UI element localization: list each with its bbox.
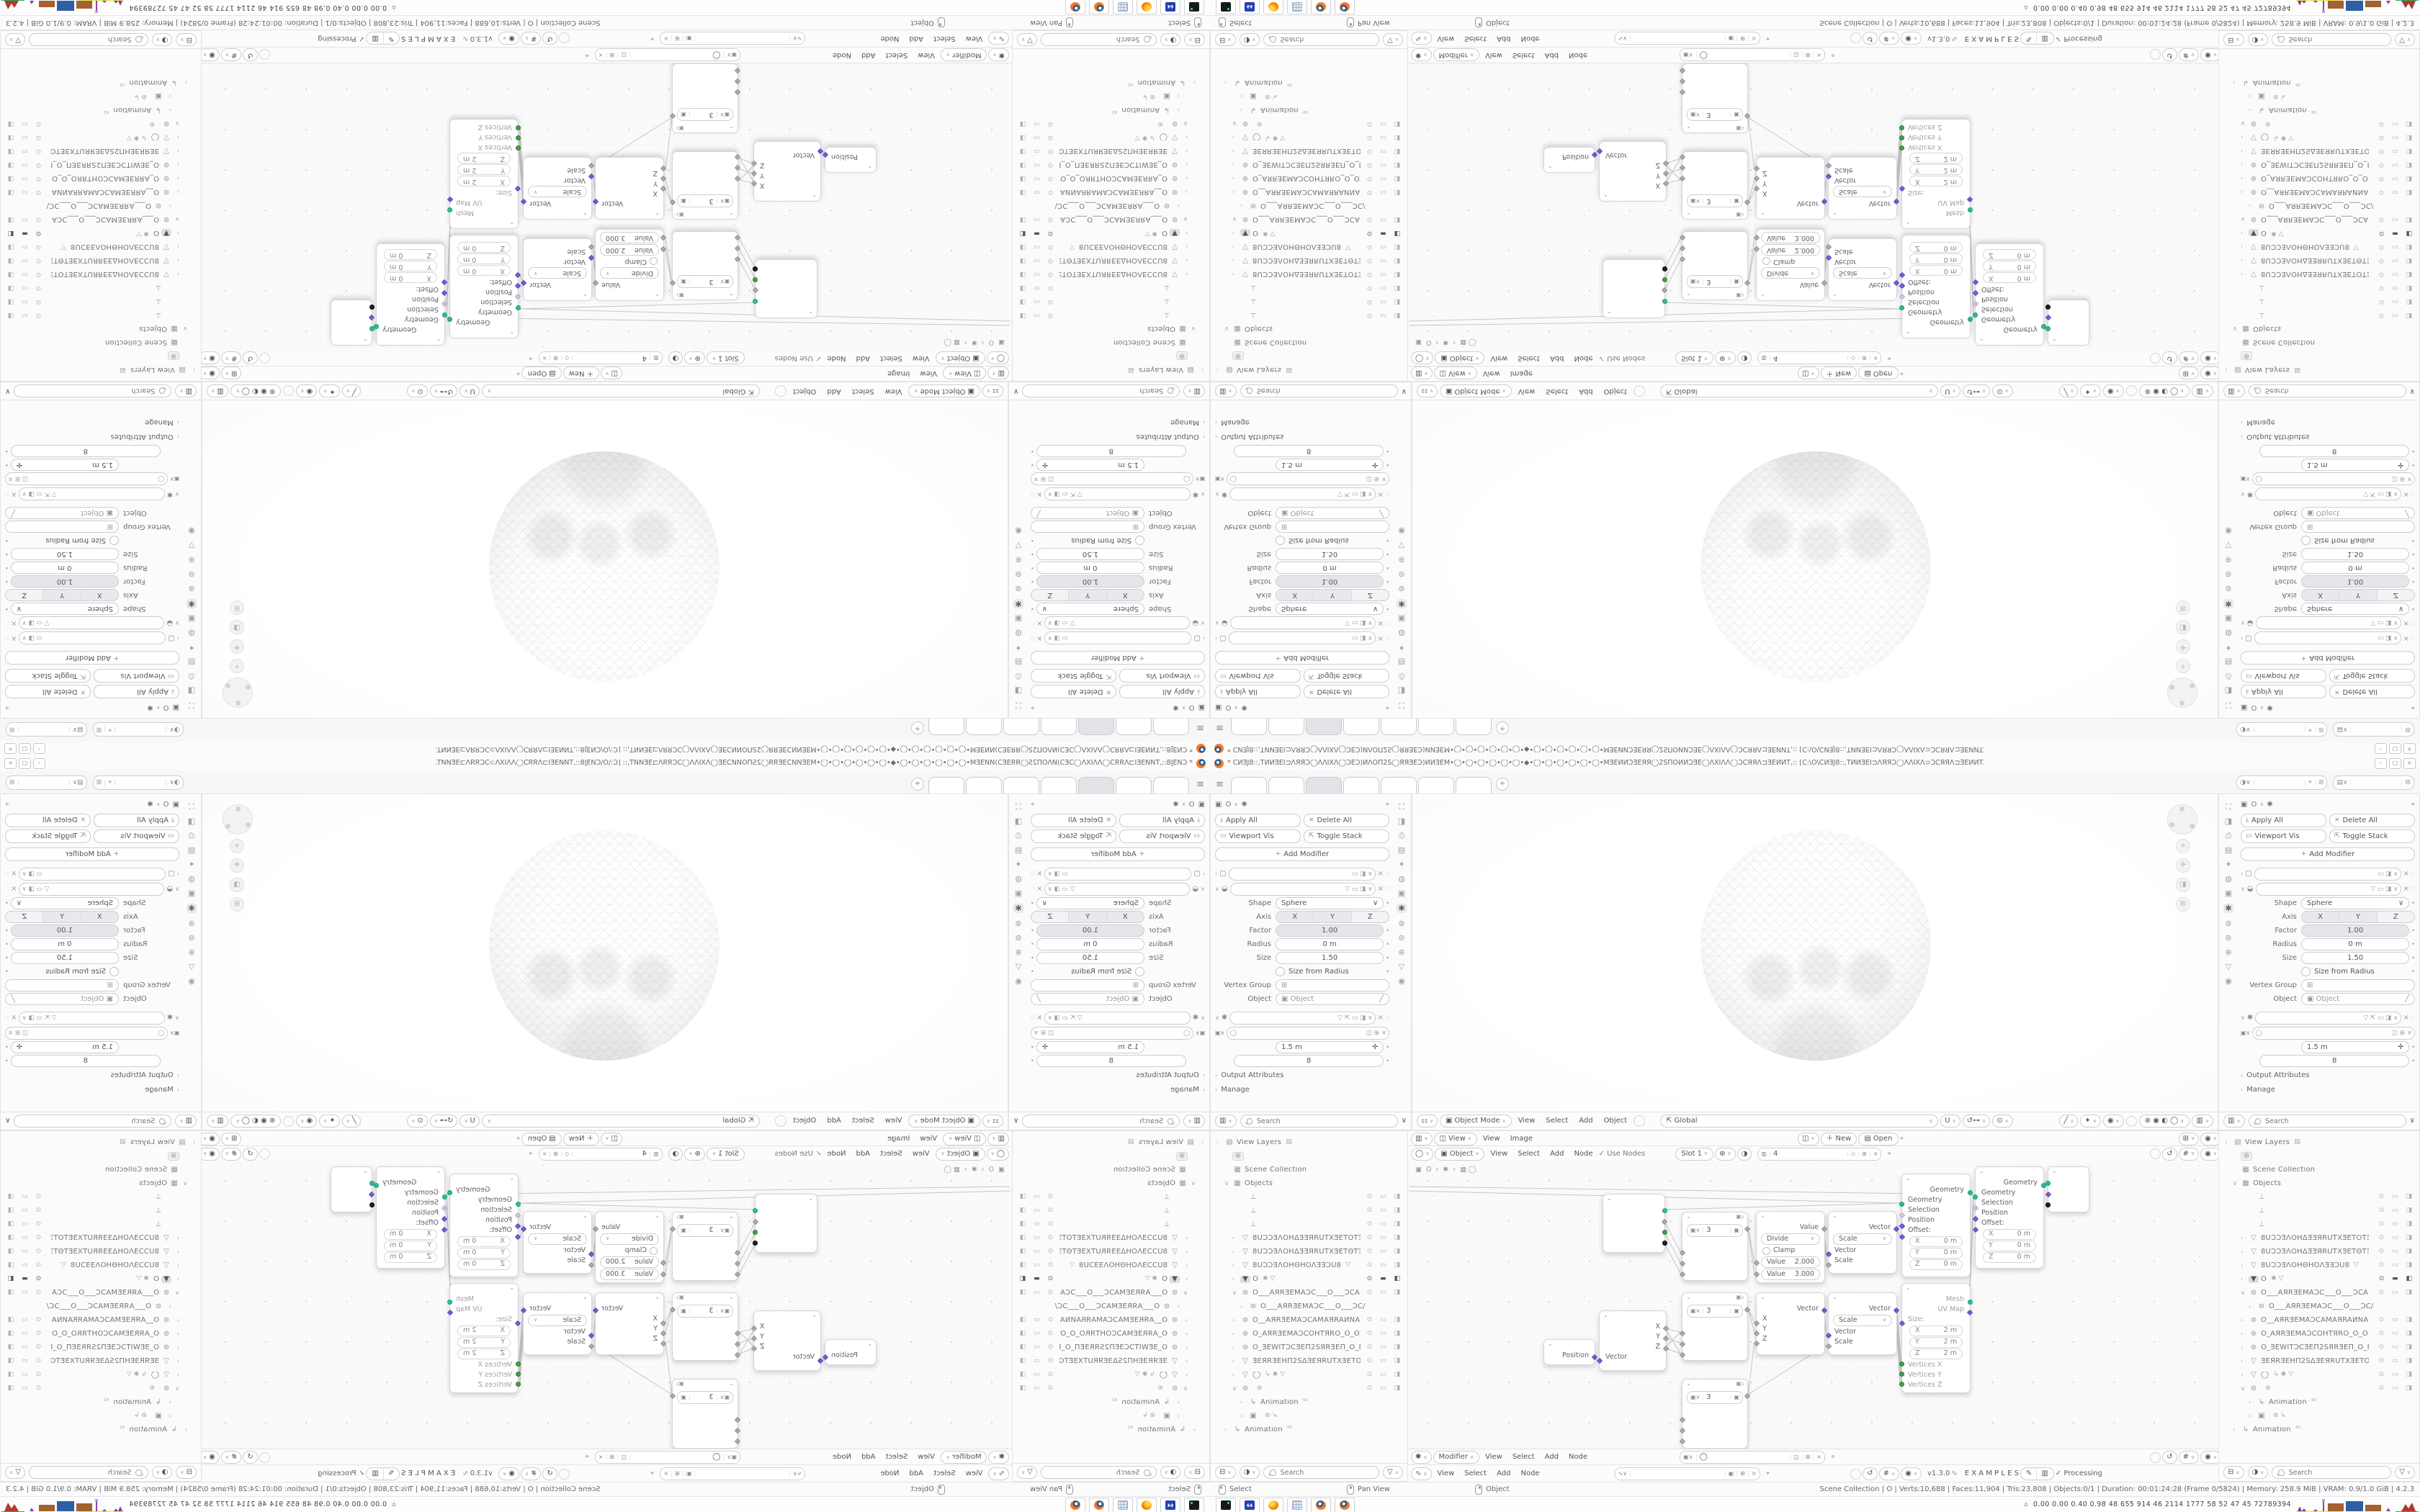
outliner-row[interactable]: ⊥ ⊙ ▭ ◨ bbox=[4, 1190, 198, 1204]
pin-icon[interactable]: ⌖ bbox=[1031, 801, 1035, 809]
visibility-toggles[interactable]: ⊙ ▭ ◨ bbox=[4, 271, 41, 277]
outliner-search[interactable] bbox=[2272, 33, 2391, 46]
new-image-button[interactable]: ＋New bbox=[1821, 1133, 1857, 1146]
outliner-row[interactable]: › ↳ Animation ⁴² bbox=[1016, 76, 1206, 89]
tab-object-icon[interactable]: ▣ bbox=[188, 889, 195, 897]
add-modifier-button[interactable]: +Add Modifier bbox=[1031, 651, 1205, 665]
overlays-button[interactable]: ◉∨ bbox=[199, 367, 220, 380]
menu-object[interactable]: Object bbox=[1600, 1117, 1632, 1125]
tab-particles-icon[interactable]: ⊛ bbox=[2225, 585, 2231, 593]
expand-caret[interactable]: › bbox=[171, 258, 179, 264]
shading-mode-group[interactable]: ⊕ ◉ ◐ ◯ ∨ bbox=[2139, 384, 2190, 397]
outliner-row[interactable]: ⊥ ⊙ ▭ ◨ bbox=[1016, 281, 1206, 294]
outliner-row[interactable]: › ⊚ O___AЯRƎEMAƆC___O___ƆC/ bbox=[4, 1300, 198, 1313]
outliner-row[interactable]: › ▼ O ✱ ▽ ⊙ ▬ ◧ bbox=[4, 1272, 198, 1286]
outliner-row[interactable]: ⊥ ⊙ ▭ ◨ bbox=[1016, 294, 1206, 308]
outliner-row[interactable]: ∨ ⊚ O___AЯRƎEMAƆC___O___ƆCAMƎ ⊙ ▭ ◨ bbox=[1214, 212, 1404, 226]
open-image-button[interactable]: ▤Open bbox=[521, 1133, 561, 1146]
taskbar-system-monitor-icon[interactable] bbox=[1184, 1498, 1204, 1512]
outliner-row[interactable]: › ⊚ O_ƎEWITƆCƎEΠ2SЯRƎEΠ_O_ΠƎEЯR ⊙ ▭ ◨ bbox=[4, 1341, 198, 1354]
visibility-toggles[interactable]: ⊙ ▭ ◨ bbox=[1367, 271, 1404, 277]
outliner-row[interactable]: ⊥ ⊙ ▭ ◨ bbox=[1016, 1218, 1206, 1231]
outliner-row[interactable]: ⊥ ⊙ ▭ ◨ bbox=[2222, 1190, 2416, 1204]
annotate-button[interactable]: ╱∨ bbox=[2059, 384, 2078, 397]
node-separate-xyz[interactable]: ⌄ X Y Z Vector bbox=[1599, 141, 1667, 202]
outliner-row[interactable]: › ▽ 8UƆƆƎΛΟΗΔƎƎЯRUTXƎETΘTƎEXT ⊙ ▭ ◨ bbox=[2222, 1245, 2416, 1259]
expand-caret[interactable]: ∨ bbox=[1180, 121, 1188, 127]
node-position[interactable]: ⌄ Position bbox=[825, 147, 877, 173]
object-name[interactable]: 8UƆƆƎΛΟΗΔƎƎЯRUTXƎETΘTƎEXT bbox=[2261, 1248, 2369, 1256]
image-browse-button[interactable]: ◫∨ bbox=[1798, 367, 1819, 380]
grid-snap-button[interactable]: #∨ bbox=[2179, 48, 2200, 61]
visibility-toggles[interactable]: ⊙ ▭ ◨ bbox=[1367, 257, 1404, 264]
expand-caret[interactable]: › bbox=[2241, 1372, 2249, 1378]
workspace-tab[interactable] bbox=[1153, 719, 1189, 735]
visibility-toggles[interactable]: ⊙ ▭ ◨ bbox=[1016, 148, 1053, 154]
gn-context-dropdown[interactable]: Modifier∨ bbox=[1433, 48, 1480, 61]
outliner-row[interactable]: › ▽ ƎEЯRƎEHΠ2SΔƎEЯRUTXƎETOTƎEXT ⊙ ▭ ◨ bbox=[1016, 1354, 1206, 1368]
falloff-button[interactable]: ⊙∨ bbox=[1992, 1115, 2013, 1128]
visibility-toggles[interactable]: ⊙ ▭ ◨ bbox=[4, 189, 41, 195]
object-name[interactable]: O bbox=[1252, 1276, 1258, 1283]
annotate-button[interactable]: ╱∨ bbox=[2059, 1115, 2078, 1128]
output-attributes-expander[interactable]: ›Output Attributes bbox=[1031, 1070, 1205, 1081]
delete-all-button[interactable]: ×Delete All bbox=[2329, 814, 2415, 827]
grid-snap-button[interactable]: #∨ bbox=[221, 352, 242, 365]
filter-funnel-button[interactable]: ▽∨ bbox=[1017, 33, 1037, 46]
node-combine-xyz[interactable]: ⌄ Vector X Y Z bbox=[1756, 157, 1825, 220]
scene-selector[interactable]: ◑∨⌖⊞ bbox=[2236, 775, 2327, 790]
object-name[interactable]: Objects bbox=[1147, 1180, 1175, 1187]
visibility-toggles[interactable]: ⊙ ▭ ◨ bbox=[1367, 1262, 1404, 1269]
outliner-row[interactable]: › ▤ View Layers ▤ bbox=[1214, 1135, 1404, 1149]
outliner-search[interactable] bbox=[29, 33, 148, 46]
visibility-toggles[interactable]: ⊙ ▭ ◨ bbox=[2379, 1331, 2416, 1337]
outliner-row[interactable]: › ▽ 8UƆƆƎΛΟΗΔƎƎЯRUTXƎETOTƎEXT ⊙ ▭ ◨ bbox=[2222, 1231, 2416, 1245]
expand-caret[interactable]: ∨ bbox=[1232, 121, 1240, 127]
grid-icon[interactable]: ⊞ bbox=[2176, 600, 2190, 615]
manage-expander[interactable]: ›Manage bbox=[1215, 416, 1389, 428]
display-mode-button[interactable]: ⊟∨ bbox=[1215, 33, 1236, 46]
menu-view[interactable]: View bbox=[913, 51, 939, 58]
object-name[interactable]: O bbox=[1252, 230, 1258, 237]
tab-modifiers-icon[interactable]: ✱ bbox=[187, 904, 196, 913]
outliner-row[interactable]: › ⊚ O_ƎEWITƆCƎEΠ2SЯRƎEΠ_O_ΠƎEЯR ⊙ ▭ ◨ bbox=[4, 158, 198, 171]
display-mode-button[interactable]: ⊟∨ bbox=[176, 33, 197, 46]
gn-context-dropdown[interactable]: Modifier∨ bbox=[941, 1451, 987, 1464]
tab-object-icon[interactable]: ▣ bbox=[1398, 889, 1405, 897]
taskbar-firefox-icon[interactable] bbox=[1137, 0, 1157, 15]
visibility-toggles[interactable]: ⊙ ▭ ◨ bbox=[4, 1344, 41, 1351]
menu-add[interactable]: Add bbox=[1492, 1470, 1515, 1477]
modifier-slot-cast[interactable]: ∨◒▽▭◨∨×∷ bbox=[1215, 616, 1389, 629]
shape-dropdown[interactable]: Sphere∨ bbox=[1036, 603, 1144, 615]
editor-type-button[interactable]: ∿∨ bbox=[1411, 1467, 1432, 1480]
vector-operation-dropdown[interactable]: Scale∨ bbox=[1833, 1315, 1892, 1326]
expand-caret[interactable]: › bbox=[1240, 94, 1248, 99]
visibility-toggles[interactable]: ⊙ ▭ ◨ bbox=[4, 134, 41, 140]
expand-caret[interactable]: › bbox=[2241, 1345, 2249, 1351]
outliner-row[interactable]: › ▽ 8UƆƆƎΛΟΗΔƎƎЯRUTXƎETOTƎEXT ⊙ ▭ ◨ bbox=[1016, 267, 1206, 281]
menu-add[interactable]: Add bbox=[857, 1454, 879, 1461]
outliner-row[interactable]: › ↳ Animation ⁴² bbox=[4, 76, 198, 89]
chevron-down-icon[interactable]: ∨ bbox=[5, 387, 10, 395]
outliner-row[interactable]: › ▽ 8UƆƆƎΛΟΗΔƎƎЯRUTXƎETOTƎEXT ⊙ ▭ ◨ bbox=[1214, 1231, 1404, 1245]
grid-icon[interactable]: ⊞ bbox=[2176, 897, 2190, 912]
menu-select[interactable]: Select bbox=[929, 35, 960, 42]
axis-segmented[interactable]: XYZ bbox=[1031, 911, 1144, 923]
apply-all-button[interactable]: ⤓Apply All bbox=[1119, 685, 1205, 698]
object-name[interactable]: O___AЯRƎEMAƆC___O___ƆCAMƎ bbox=[1252, 1290, 1361, 1297]
manage-expander[interactable]: ›Manage bbox=[2241, 416, 2415, 428]
outliner-row[interactable]: ∨ ⊚ O___AЯRƎEMAƆC___O___ƆCAMƎ ⊙ ▭ ◨ bbox=[4, 1286, 198, 1300]
node-set-position-1[interactable]: ⌄ Geometry Geometry Selection Position O… bbox=[1901, 1174, 1971, 1277]
object-name[interactable]: 8UƆƆƎΛΟΗΔƎƎЯRUTXƎETOTƎEXT bbox=[1252, 271, 1361, 278]
outliner-row[interactable]: › ▽ 8UƆƆƎΛΟΗΘΗΟΛƎƎƆU8 ▽ ⊙ ▭ ◨ bbox=[1214, 240, 1404, 253]
apply-all-button[interactable]: ⤓Apply All bbox=[1119, 814, 1205, 827]
menu-node[interactable]: Node bbox=[1564, 1454, 1592, 1461]
move-icon[interactable]: ✛ bbox=[230, 858, 244, 873]
menu-node[interactable]: Node bbox=[828, 1454, 856, 1461]
node-vector-scale-2[interactable]: ⌄ Vector Scale∨ Vector Scale bbox=[523, 1292, 592, 1355]
object-name[interactable]: O bbox=[1162, 1276, 1168, 1283]
expand-caret[interactable]: › bbox=[2249, 1413, 2257, 1419]
tab-object-icon[interactable]: ▣ bbox=[188, 615, 195, 623]
tab-constraints-icon[interactable]: ⊕ bbox=[1015, 948, 1021, 956]
size-from-radius-checkbox[interactable] bbox=[1135, 536, 1144, 545]
object-name[interactable]: Animation bbox=[1121, 1399, 1160, 1406]
outliner-row[interactable]: › ▽ 8UƆƆƎΛΟΗΔƎƎЯRUTXƎETΘTƎEXT ⊙ ▭ ◨ bbox=[4, 1245, 198, 1259]
maximize-button[interactable]: ▢ bbox=[2389, 744, 2401, 755]
grid-snap-button[interactable]: #∨ bbox=[221, 1148, 242, 1161]
outliner-row[interactable]: › ▽ 8UƆƆƎΛΟΗΘΗΟΛƎƎƆU8 ▽ ⊙ ▭ ◨ bbox=[4, 240, 198, 253]
tab-physics-icon[interactable]: ⊚ bbox=[1398, 934, 1404, 942]
node-group-output[interactable]: ⌄ bbox=[331, 300, 372, 346]
node-group-output[interactable]: ⌄ bbox=[2048, 300, 2089, 346]
toggle-stack-button[interactable]: ⇱Toggle Stack bbox=[2329, 829, 2415, 843]
visibility-toggles[interactable]: ⊙ ▭ ◨ bbox=[4, 216, 41, 222]
visibility-toggles[interactable]: ⊙ ▭ ◨ bbox=[4, 1207, 41, 1214]
node-group-datablock[interactable]: ▣∨◯◫⊞× bbox=[1215, 1027, 1389, 1040]
falloff-button[interactable]: ⊙∨ bbox=[407, 384, 428, 397]
expand-caret[interactable]: ∨ bbox=[171, 217, 179, 222]
tab-render-icon[interactable]: ◨ bbox=[188, 687, 195, 695]
output-attributes-expander[interactable]: ›Output Attributes bbox=[1215, 1070, 1389, 1081]
snap-button[interactable]: ↺ bbox=[542, 1467, 557, 1480]
object-name[interactable]: ƎEЯRƎEHΠ2SΔƎEЯRUTXƎETOTƎEXT bbox=[2261, 1358, 2369, 1365]
expand-caret[interactable]: › bbox=[163, 203, 171, 209]
expand-caret[interactable]: › bbox=[1224, 80, 1232, 86]
value-field-2[interactable]: Value3.000 bbox=[600, 232, 659, 243]
menu-add[interactable]: Add bbox=[852, 1151, 874, 1158]
clamp-checkbox[interactable]: Clamp bbox=[596, 1246, 663, 1256]
object-name[interactable]: ƎEЯRƎEHΠ2SΔƎEЯRUTXƎETOTƎEXT bbox=[51, 1358, 159, 1365]
expand-caret[interactable]: › bbox=[2241, 1277, 2249, 1282]
node-set-position-2[interactable]: ⌄ Geometry Geometry Selection Position O… bbox=[1975, 1166, 2044, 1269]
viewport-nav-gizmo[interactable] bbox=[223, 804, 253, 834]
clamp-checkbox[interactable]: Clamp bbox=[596, 256, 663, 266]
visibility-toggles[interactable]: ⊙ ▭ ◨ bbox=[1016, 1331, 1053, 1337]
tab-data-icon[interactable]: ▽ bbox=[189, 963, 194, 971]
outliner-row[interactable]: ∨ ⊚ O___AЯRƎEMAƆC___O___ƆCAMƎ ⊙ ▭ ◨ bbox=[1016, 212, 1206, 226]
outliner-row[interactable]: › ▽ 8UƆƆƎΛΟΗΔƎƎЯRUTXƎETΘTƎEXT ⊙ ▭ ◨ bbox=[1016, 1245, 1206, 1259]
expand-caret[interactable]: › bbox=[1180, 1263, 1188, 1269]
tab-viewlayer-icon[interactable]: ▤ bbox=[1398, 658, 1405, 666]
snap-button[interactable]: ↺ bbox=[243, 1148, 257, 1161]
transform-orientation-dropdown[interactable]: ⇱Global∨ bbox=[482, 384, 760, 397]
expand-caret[interactable]: › bbox=[1232, 1263, 1240, 1269]
overlays-button[interactable]: ◉∨ bbox=[498, 1467, 519, 1480]
filter-funnel-button[interactable]: ▽∨ bbox=[1017, 1466, 1037, 1479]
menu-icon[interactable]: ≡ bbox=[1196, 780, 1204, 789]
tab-particles-icon[interactable]: ⊛ bbox=[1015, 919, 1021, 927]
menu-select[interactable]: Select bbox=[1508, 1454, 1539, 1461]
object-name[interactable]: 8UƆƆƎΛΟΗΘΗΟΛƎƎƆU8 bbox=[1252, 243, 1341, 251]
grid-snap-button[interactable]: #∨ bbox=[2179, 352, 2200, 365]
node-set-position-2[interactable]: ⌄ Geometry Geometry Selection Position O… bbox=[376, 1166, 445, 1269]
vector-operation-dropdown[interactable]: Scale∨ bbox=[528, 186, 587, 197]
object-name[interactable]: View Layers bbox=[1237, 366, 1281, 374]
node-set-position-2[interactable]: ⌄ Geometry Geometry Selection Position O… bbox=[376, 243, 445, 346]
outliner-row[interactable]: › ▼ O ✱ ▽ ⊙ ▬ ◧ bbox=[1016, 226, 1206, 240]
tab-object-icon[interactable]: ▣ bbox=[1015, 889, 1022, 897]
gn-input-m[interactable]: 1.5 m✛ bbox=[1276, 459, 1384, 471]
minimize-button[interactable]: – bbox=[2375, 744, 2387, 755]
outliner-row[interactable]: › ⊚ O__AЯRƎEMAƆCAMAЯRAͶNAΠ_C ⊙ ▭ ◨ bbox=[1214, 185, 1404, 199]
gn-input-n[interactable]: 8 bbox=[2259, 1055, 2409, 1067]
expand-caret[interactable]: › bbox=[1196, 1140, 1204, 1146]
pin-icon[interactable]: ⌖ bbox=[1031, 703, 1035, 711]
refresh-icon[interactable] bbox=[2150, 50, 2161, 60]
outliner-row[interactable]: ⊥ ⊙ ▭ ◨ bbox=[4, 308, 198, 322]
menu-add[interactable]: Add bbox=[1574, 1117, 1597, 1125]
outliner-row[interactable]: › ↳ Animation ⁴² bbox=[1214, 1423, 1404, 1436]
shader-context-dropdown[interactable]: ▣Object∨ bbox=[1435, 1148, 1484, 1161]
refresh-icon[interactable] bbox=[1850, 1469, 1861, 1480]
pin-icon[interactable]: ⌖ bbox=[650, 1470, 655, 1477]
grid-icon[interactable]: ⊞ bbox=[230, 600, 244, 615]
outliner-search[interactable] bbox=[2272, 1466, 2391, 1479]
outliner-row[interactable]: › ↳ Animation ⁴² bbox=[4, 103, 198, 117]
minimize-button[interactable]: – bbox=[33, 744, 45, 755]
visibility-toggles[interactable]: ⊙ ▭ ◨ bbox=[1367, 1372, 1404, 1378]
snap-button[interactable]: ↺ bbox=[2162, 48, 2177, 61]
outliner-row[interactable]: › ▽ ƎEЯRƎEHΠ2SΔƎEЯRUTXƎETOTƎEXT ⊙ ▭ ◨ bbox=[4, 144, 198, 158]
size-field[interactable]: 1.50 bbox=[11, 548, 119, 560]
object-name[interactable]: ◯ bbox=[2261, 134, 2269, 141]
object-name[interactable]: Animation bbox=[2253, 1426, 2291, 1434]
workspace-tab[interactable] bbox=[1003, 777, 1039, 793]
editor-type-button[interactable]: ✱∨ bbox=[1411, 48, 1432, 61]
expand-caret[interactable]: › bbox=[1180, 1277, 1188, 1282]
object-name[interactable]: 8UƆƆƎΛΟΗΔƎƎЯRUTXƎETOTƎEXT bbox=[2261, 1235, 2369, 1242]
radius-field[interactable]: 0 m bbox=[2301, 938, 2409, 950]
properties-search[interactable] bbox=[1240, 384, 1398, 397]
snap-button[interactable]: ↺ bbox=[243, 352, 257, 365]
expand-caret[interactable]: › bbox=[2249, 94, 2257, 99]
workspace-tab[interactable] bbox=[1381, 777, 1417, 793]
taskbar-firefox-icon[interactable] bbox=[1263, 1498, 1283, 1512]
tab-material-icon[interactable]: ◉ bbox=[1398, 527, 1405, 535]
menu-add[interactable]: Add bbox=[857, 51, 879, 58]
modifier-slot-nodes[interactable]: ∨✱▽⇱▭◨∨×∷ bbox=[5, 487, 179, 500]
radius-field[interactable]: 0 m bbox=[1276, 938, 1384, 950]
visibility-toggles[interactable]: ⊙ ▭ ◨ bbox=[1016, 1207, 1053, 1214]
outliner-row[interactable]: › ⊚ O_ƎEWITƆCƎEΠ2SЯRƎEΠ_O_ΠƎEЯR ⊙ ▭ ◨ bbox=[1016, 158, 1206, 171]
workspace-tab[interactable] bbox=[1041, 777, 1077, 793]
proportional-edit-button[interactable]: ↺⊶∨ bbox=[1963, 1115, 1991, 1128]
node-group-3-a[interactable]: ⌄▣₃ ▣∨3▣ bbox=[672, 1212, 738, 1281]
outliner-search[interactable] bbox=[1041, 1466, 1157, 1479]
use-nodes-checkbox[interactable]: ✓ Use Nodes bbox=[1599, 1151, 1646, 1158]
axis-segmented[interactable]: XYZ bbox=[5, 589, 119, 601]
object-name[interactable]: Objects bbox=[1147, 325, 1175, 333]
expand-caret[interactable]: ∨ bbox=[1180, 1290, 1188, 1296]
gn-input-n[interactable]: 8 bbox=[1036, 1055, 1186, 1067]
menu-node[interactable]: Node bbox=[828, 51, 856, 58]
tab-data-icon[interactable]: ▽ bbox=[1399, 541, 1404, 549]
outliner-row[interactable]: › ▣ ⊛ ↳ bbox=[2222, 89, 2416, 103]
shape-dropdown[interactable]: Sphere∨ bbox=[1036, 897, 1144, 909]
output-attributes-expander[interactable]: ›Output Attributes bbox=[1031, 431, 1205, 442]
close-button[interactable]: × bbox=[2403, 744, 2416, 755]
tool-buttons[interactable]: ✎▥ bbox=[2020, 32, 2054, 45]
taskbar-blender-icon[interactable] bbox=[1089, 1498, 1109, 1512]
object-name[interactable]: Animation bbox=[1260, 1399, 1299, 1406]
grid-snap-button[interactable]: #∨ bbox=[221, 48, 242, 61]
toggle-stack-button[interactable]: ⇱Toggle Stack bbox=[5, 669, 91, 683]
visibility-toggles[interactable]: ⊙ ▭ ◨ bbox=[1016, 161, 1053, 168]
outliner-row[interactable]: › ▣ ⊛ ↳ bbox=[1214, 89, 1404, 103]
tab-material-icon[interactable]: ◉ bbox=[1015, 527, 1022, 535]
apply-all-button[interactable]: ⤓Apply All bbox=[94, 814, 179, 827]
workspace-tab[interactable] bbox=[1456, 719, 1492, 735]
node-separate-xyz[interactable]: ⌄ X Y Z Vector bbox=[753, 141, 821, 202]
gn-input-m[interactable]: 1.5 m✛ bbox=[2301, 1041, 2409, 1053]
outliner-row[interactable]: ▦ Scene Collection bbox=[4, 1163, 198, 1176]
factor-slider[interactable]: 1.00 bbox=[1276, 575, 1384, 588]
gizmos-button[interactable]: ⊞∨ bbox=[2179, 1133, 2200, 1146]
visibility-toggles[interactable]: ⊙ ▭ ◨ bbox=[4, 243, 41, 250]
object-name[interactable]: O_ƎEWITƆCƎEΠ2SЯRƎEΠ_O_ΠƎEЯR bbox=[51, 161, 159, 168]
editor-type-button[interactable]: ▥∨ bbox=[1411, 367, 1433, 380]
object-name[interactable]: ƎEЯRƎEHΠ2SΔƎEЯRUTXƎETOTƎEXT bbox=[1252, 1358, 1361, 1365]
menu-node[interactable]: Node bbox=[823, 355, 850, 362]
object-name[interactable]: 8UƆƆƎΛΟΗΔƎƎЯRUTXƎETOTƎEXT bbox=[1059, 1235, 1168, 1242]
outliner-row[interactable]: ⊥ ⊙ ▭ ◨ bbox=[4, 1204, 198, 1218]
maximize-button[interactable]: ▢ bbox=[19, 758, 31, 769]
visibility-toggles[interactable]: ⊙ ▭ ◨ bbox=[1016, 271, 1053, 277]
menu-node[interactable]: Node bbox=[876, 1470, 903, 1477]
tab-modifiers-icon[interactable]: ✱ bbox=[1013, 599, 1023, 608]
outliner-row[interactable]: ⊥ ⊙ ▭ ◨ bbox=[1016, 1204, 1206, 1218]
object-name[interactable]: Animation bbox=[2269, 1399, 2307, 1406]
visibility-toggles[interactable]: ⊙ ▭ ◨ bbox=[4, 298, 41, 305]
filter-funnel-button[interactable]: ▽∨ bbox=[1383, 1466, 1403, 1479]
visibility-toggles[interactable]: ⊙ ▭ ◨ bbox=[1367, 1194, 1404, 1200]
menu-view[interactable]: View bbox=[1514, 1117, 1540, 1125]
editor-type-button[interactable]: ✱∨ bbox=[1411, 1451, 1432, 1464]
minimize-button[interactable]: – bbox=[33, 758, 45, 769]
expand-caret[interactable]: ∨ bbox=[179, 1181, 187, 1187]
close-button[interactable]: × bbox=[2403, 758, 2416, 769]
outliner-row[interactable]: › ▽ 8UƆƆƎΛΟΗΘΗΟΛƎƎƆU8 ▽ ⊙ ▭ ◨ bbox=[2222, 240, 2416, 253]
object-name[interactable]: 8UƆƆƎΛΟΗΔƎƎЯRUTXƎETOTƎEXT bbox=[2261, 271, 2369, 278]
proportional-edit-button[interactable]: ↺⊶∨ bbox=[1963, 384, 1991, 397]
viewport-3d[interactable]: + ✛ ◨ ⊞ ⚏ ∨ ▣Object Mode∨ View Select Ad… bbox=[202, 793, 1008, 1130]
modifier-slot-nodes[interactable]: ∨✱▽⇱▭◨∨×∷ bbox=[1031, 1012, 1205, 1025]
object-name[interactable]: Animation bbox=[1245, 79, 1283, 86]
refresh-icon[interactable] bbox=[559, 33, 570, 44]
expand-caret[interactable]: › bbox=[179, 1427, 187, 1433]
expand-caret[interactable]: › bbox=[1232, 135, 1240, 140]
object-name[interactable]: O bbox=[2261, 230, 2267, 237]
outliner-row[interactable]: › ⊚ O___AЯRƎEMAƆC___O___ƆC/ bbox=[1214, 1300, 1404, 1313]
tab-output-icon[interactable]: ⎙ bbox=[189, 672, 195, 680]
menu-select[interactable]: Select bbox=[881, 51, 912, 58]
taskbar-system-monitor-icon[interactable] bbox=[1216, 1498, 1236, 1512]
node-group-3-c[interactable]: ⌄▣₃ ▣∨3▣ bbox=[1682, 1379, 1748, 1449]
menu-node[interactable]: Node bbox=[823, 1151, 850, 1158]
visibility-toggles[interactable]: ⊙ ▭ ◨ bbox=[1367, 1290, 1404, 1296]
modifier-slot-cast[interactable]: ∨◒▽▭◨∨×∷ bbox=[1215, 883, 1389, 896]
grid-snap-button[interactable]: #∨ bbox=[521, 1467, 542, 1480]
visibility-toggles[interactable]: ⊙ ▭ ◨ bbox=[2379, 1248, 2416, 1255]
pin-icon[interactable]: ⌖ bbox=[1900, 370, 1904, 377]
tab-constraints-icon[interactable]: ⊕ bbox=[1398, 948, 1404, 956]
geometry-node-graph[interactable]: ▣O ›✱ ›▦ ◯ bbox=[202, 1161, 1012, 1449]
expand-caret[interactable]: › bbox=[1232, 1345, 1240, 1351]
expand-caret[interactable]: › bbox=[163, 107, 171, 113]
node-group-output[interactable]: ⌄ bbox=[2048, 1166, 2089, 1212]
modifier-slot-cast[interactable]: ∨◒▽▭◨∨×∷ bbox=[1031, 616, 1205, 629]
tab-scene-icon[interactable]: ✦ bbox=[1015, 644, 1021, 652]
visibility-toggles[interactable]: ⊙ ▭ ◨ bbox=[1016, 1221, 1053, 1228]
object-field[interactable]: ▣ Object╱ bbox=[5, 507, 119, 519]
object-name[interactable]: Animation bbox=[1245, 1426, 1283, 1434]
snap-button[interactable]: ↺ bbox=[243, 48, 257, 61]
node-separate-xyz[interactable]: ⌄ X Y Z Vector bbox=[753, 1310, 821, 1371]
gn-context-dropdown[interactable]: Modifier∨ bbox=[941, 48, 987, 61]
expand-caret[interactable]: › bbox=[1188, 1427, 1196, 1433]
menu-image[interactable]: Image bbox=[883, 370, 914, 377]
visibility-toggles[interactable]: ⊙ ▭ ◨ bbox=[2379, 120, 2416, 127]
outliner-row[interactable]: › ▽ ◯ ↳ ✱ ▽ ⊙ ▭ ◨ bbox=[4, 130, 198, 144]
tab-viewlayer-icon[interactable]: ▤ bbox=[1398, 846, 1405, 854]
lasso-tool-icon[interactable] bbox=[1633, 1115, 1645, 1127]
half-sphere-icon[interactable]: ◑ bbox=[668, 352, 684, 365]
open-image-button[interactable]: ▤Open bbox=[1858, 1133, 1898, 1146]
expand-caret[interactable]: › bbox=[171, 1372, 179, 1378]
properties-editor-type-button[interactable]: ▥ ∨ bbox=[1183, 1115, 1205, 1128]
half-sphere-icon[interactable]: ◑ bbox=[1737, 1148, 1752, 1161]
shape-dropdown[interactable]: Sphere∨ bbox=[1276, 897, 1384, 909]
lasso-tool-icon[interactable] bbox=[1633, 385, 1645, 397]
size-field[interactable]: 1.50 bbox=[1036, 548, 1144, 560]
menu-select[interactable]: Select bbox=[881, 1454, 912, 1461]
expand-caret[interactable]: › bbox=[187, 367, 195, 373]
greebled-sphere-object[interactable] bbox=[489, 830, 720, 1061]
tab-material-icon[interactable]: ◉ bbox=[188, 527, 195, 535]
visibility-toggles[interactable]: ⊙ ▭ ◨ bbox=[1016, 1194, 1053, 1200]
zoom-icon[interactable]: + bbox=[2176, 839, 2190, 853]
properties-search[interactable] bbox=[2249, 1115, 2406, 1128]
node-position[interactable]: ⌄ Position bbox=[825, 1339, 877, 1365]
outliner-row[interactable]: › ▽ 8UƆƆƎΛΟΗΘΗΟΛƎƎƆU8 ▽ ⊙ ▭ ◨ bbox=[4, 1259, 198, 1272]
menu-view[interactable]: View bbox=[1481, 51, 1507, 58]
add-modifier-button[interactable]: +Add Modifier bbox=[1215, 651, 1389, 665]
tab-material-icon[interactable]: ◉ bbox=[2225, 977, 2232, 985]
